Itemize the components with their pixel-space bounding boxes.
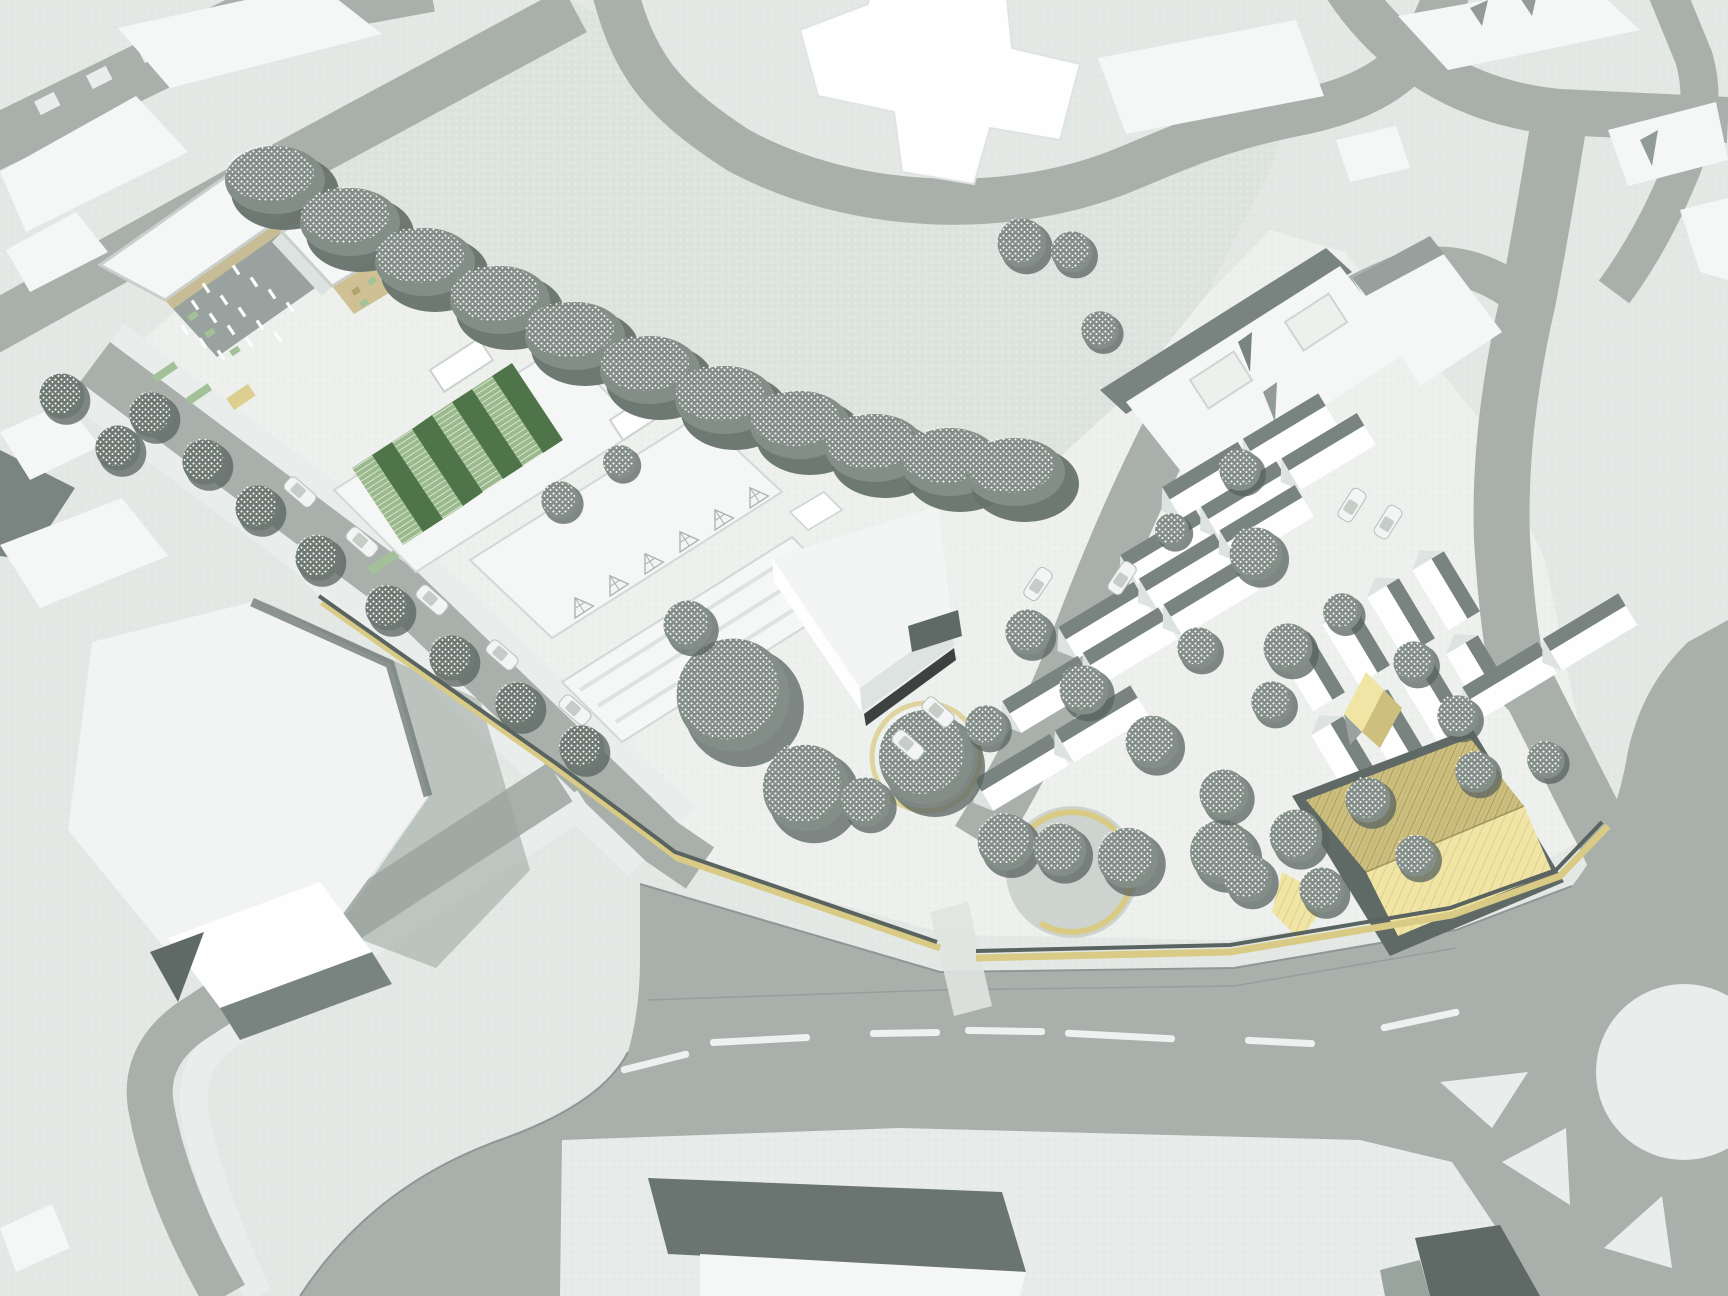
lane-dash <box>965 1027 1045 1035</box>
lane-dash <box>870 1029 940 1037</box>
masterplan-render-stage <box>0 0 1728 1296</box>
masterplan-rendering <box>0 0 1728 1296</box>
